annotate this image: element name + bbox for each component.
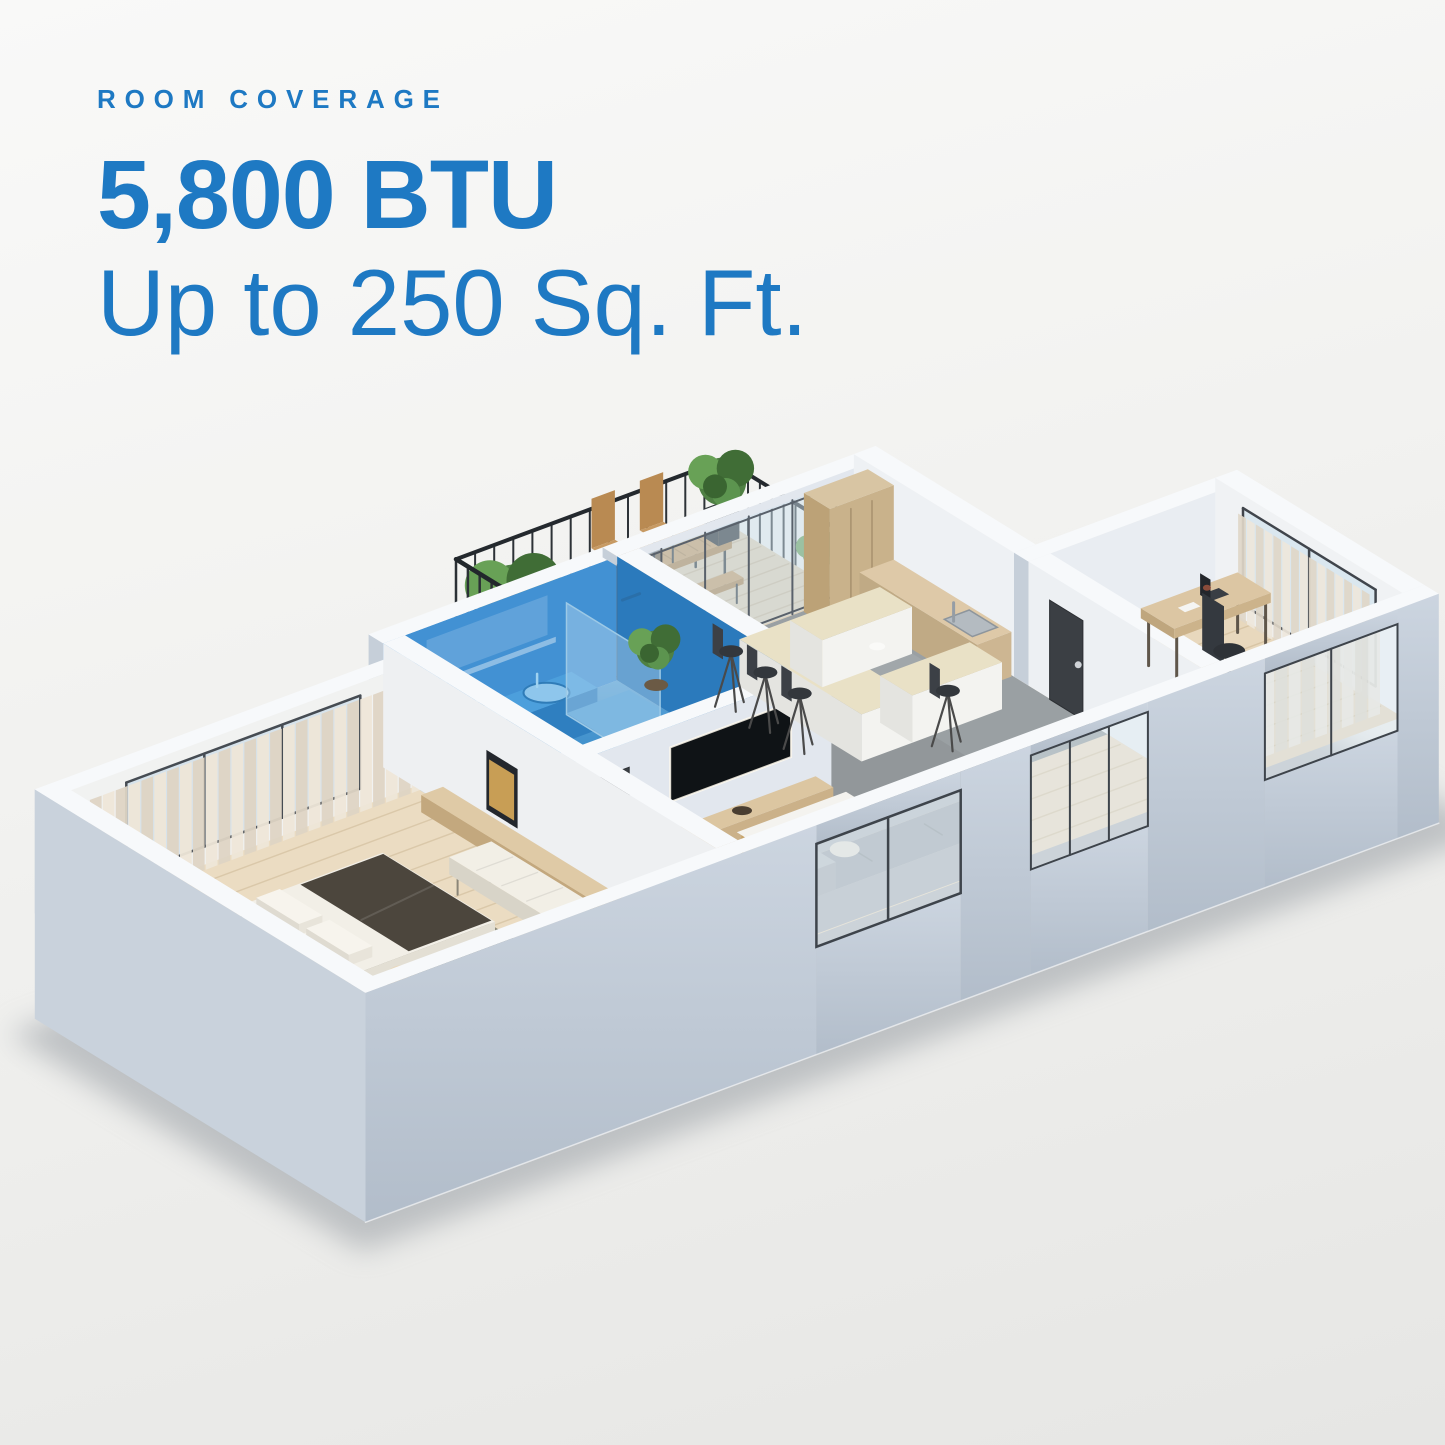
header: ROOM COVERAGE 5,800 BTU Up to 250 Sq. Ft… (97, 84, 808, 352)
promo-graphic: ROOM COVERAGE 5,800 BTU Up to 250 Sq. Ft… (0, 0, 1445, 1445)
curtain (309, 714, 321, 831)
curtain (283, 724, 295, 841)
curtain (219, 748, 231, 865)
curtain (1273, 535, 1281, 645)
curtain (360, 695, 372, 812)
curtain (334, 705, 346, 822)
curtain (1282, 541, 1290, 651)
sink (524, 683, 570, 703)
curtain (257, 733, 269, 850)
curtain (347, 700, 359, 817)
curtain (373, 690, 385, 807)
curtain (1256, 524, 1264, 634)
office-door (1050, 600, 1083, 720)
curtain (296, 719, 308, 836)
coverage-value: Up to 250 Sq. Ft. (97, 254, 808, 352)
curtain (270, 729, 282, 846)
curtain (1247, 519, 1255, 629)
eyebrow-label: ROOM COVERAGE (97, 84, 808, 115)
btu-value: 5,800 BTU (97, 145, 808, 246)
curtain (193, 757, 205, 874)
curtain (206, 753, 218, 870)
curtain (244, 738, 256, 855)
curtain (232, 743, 244, 860)
curtain (322, 709, 334, 826)
